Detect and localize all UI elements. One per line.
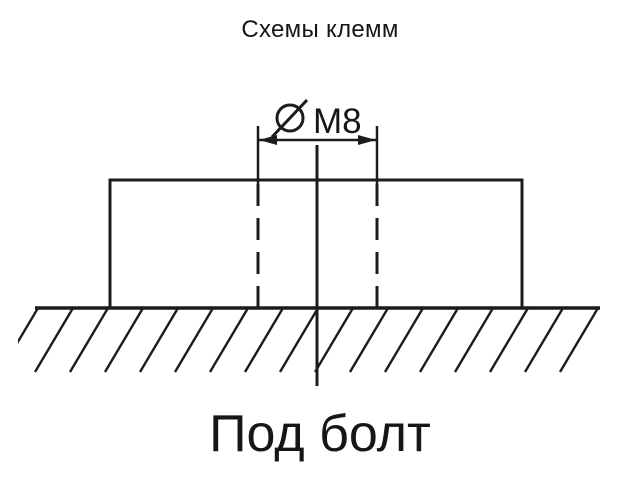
hatch-line	[140, 308, 178, 372]
hatch-line	[560, 308, 598, 372]
hatch-line	[385, 308, 423, 372]
surface-hatching	[0, 308, 598, 372]
hatch-line	[490, 308, 528, 372]
hatch-line	[105, 308, 143, 372]
hatch-line	[525, 308, 563, 372]
hatch-line	[420, 308, 458, 372]
hatch-line	[175, 308, 213, 372]
dimension-label: M8	[313, 102, 362, 141]
hatch-line	[455, 308, 493, 372]
hatch-line	[0, 308, 38, 372]
hatch-line	[35, 308, 73, 372]
hatch-line	[210, 308, 248, 372]
terminal-type-caption: Под болт	[0, 408, 640, 460]
diameter-symbol-icon	[272, 100, 307, 137]
hatch-line	[280, 308, 318, 372]
hatch-line	[350, 308, 388, 372]
hatch-line	[70, 308, 108, 372]
hatch-line	[315, 308, 353, 372]
hatch-line	[245, 308, 283, 372]
